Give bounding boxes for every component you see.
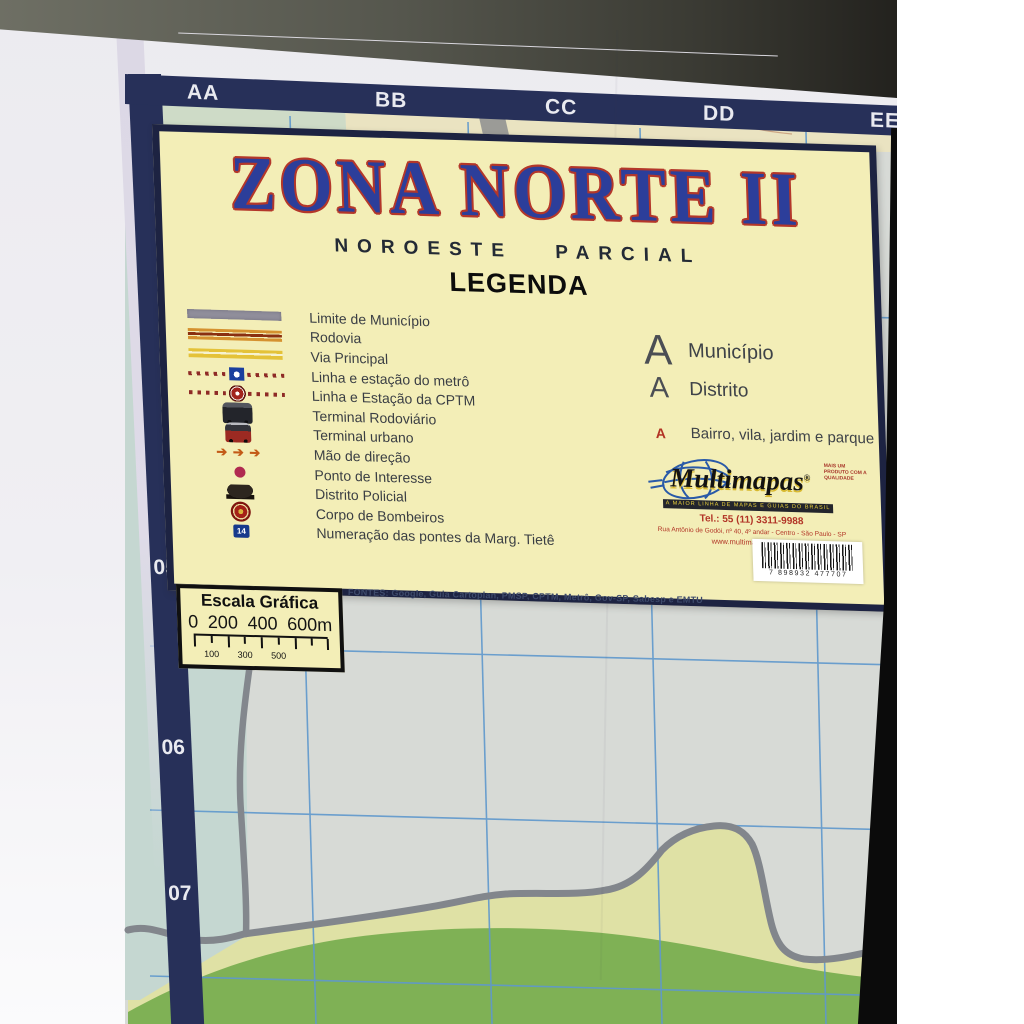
bridge-number-icon: 14 — [233, 524, 249, 537]
publisher-banner: A MAIOR LINHA DE MAPAS E GUIAS DO BRASIL — [663, 499, 833, 513]
highway-swatch — [188, 328, 282, 342]
urban-terminal-icon — [225, 423, 252, 444]
scale-title: Escala Gráfica — [180, 590, 339, 614]
scale-top-label: 600m — [287, 614, 333, 636]
place-type-column: A Município A Distrito A Bairro, vila, j… — [635, 323, 876, 592]
barcode: 7 898932 477707 — [752, 539, 863, 584]
direction-arrows-icon — [216, 443, 262, 462]
legend-item-label: Mão de direção — [314, 447, 411, 466]
road-terminal-icon — [222, 402, 253, 424]
legend-item-label: Via Principal — [310, 349, 388, 367]
cptm-line-swatch — [189, 384, 286, 403]
police-district-icon — [226, 484, 254, 500]
map-photo: 050607 AABBCCDDEE ZONA NORTE II NOROESTE… — [0, 0, 897, 1024]
place-type-row: A Bairro, vila, jardim e parque — [638, 423, 874, 447]
scale-box: Escala Gráfica 0200400600m 100300500 — [176, 584, 345, 672]
grid-row-label: 06 — [161, 736, 185, 760]
legend-item-label: Limite de Município — [309, 309, 430, 329]
grid-row-label: 07 — [168, 882, 192, 906]
fire-department-icon — [230, 501, 251, 522]
legend-item-label: Terminal Rodoviário — [312, 408, 436, 428]
municipal-boundary-swatch — [187, 309, 281, 321]
place-type-symbol: A — [638, 424, 683, 441]
publisher-logo: Multimapas® MAIS UM PRODUTO COM A QUALID… — [639, 449, 862, 548]
scale-bottom-labels: 100300500 — [194, 648, 328, 662]
point-of-interest-icon — [234, 466, 245, 477]
legend-item-label: Numeração das pontes da Marg. Tietê — [316, 525, 555, 548]
scale-bottom-label: 500 — [271, 650, 286, 660]
place-type-symbol: A — [637, 371, 682, 405]
place-type-label: Distrito — [689, 378, 749, 402]
scale-bottom-label: 100 — [204, 649, 219, 659]
legend-item-list: Limite de Município Rodovia Via Principa… — [175, 304, 633, 553]
grid-column-label: CC — [545, 95, 577, 120]
legend-panel: ZONA NORTE II NOROESTE PARCIAL LEGENDA L… — [152, 124, 891, 612]
legend-item-label: Terminal urbano — [313, 427, 414, 446]
publisher-tagline: MAIS UM PRODUTO COM A QUALIDADE — [824, 463, 869, 482]
map-title: ZONA NORTE II — [159, 136, 872, 246]
registered-mark-icon: ® — [803, 472, 810, 482]
grid-column-label: AA — [187, 81, 219, 106]
grid-column-label: DD — [703, 102, 735, 127]
place-type-symbol: A — [635, 325, 681, 374]
legend-item-label: Rodovia — [310, 329, 362, 347]
legend-item-label: Corpo de Bombeiros — [315, 506, 444, 526]
main-road-swatch — [188, 349, 282, 361]
place-type-row: A Município — [635, 325, 774, 377]
barcode-bars — [761, 542, 854, 571]
scale-bottom-label: 300 — [238, 650, 253, 660]
place-type-row: A Distrito — [637, 371, 749, 407]
place-type-label: Município — [688, 339, 774, 365]
scale-top-labels: 0200400600m — [181, 611, 340, 636]
place-type-label: Bairro, vila, jardim e parque — [690, 425, 874, 447]
legend-item-label: Ponto de Interesse — [314, 466, 432, 486]
legend-item-label: Distrito Policial — [315, 486, 407, 505]
publisher-name: Multimapas® — [670, 462, 811, 497]
metro-line-swatch — [188, 365, 284, 383]
scale-top-label: 200 — [208, 612, 239, 634]
scale-top-label: 0 — [188, 611, 199, 632]
grid-column-label: BB — [375, 88, 407, 113]
scale-top-label: 400 — [247, 613, 278, 635]
